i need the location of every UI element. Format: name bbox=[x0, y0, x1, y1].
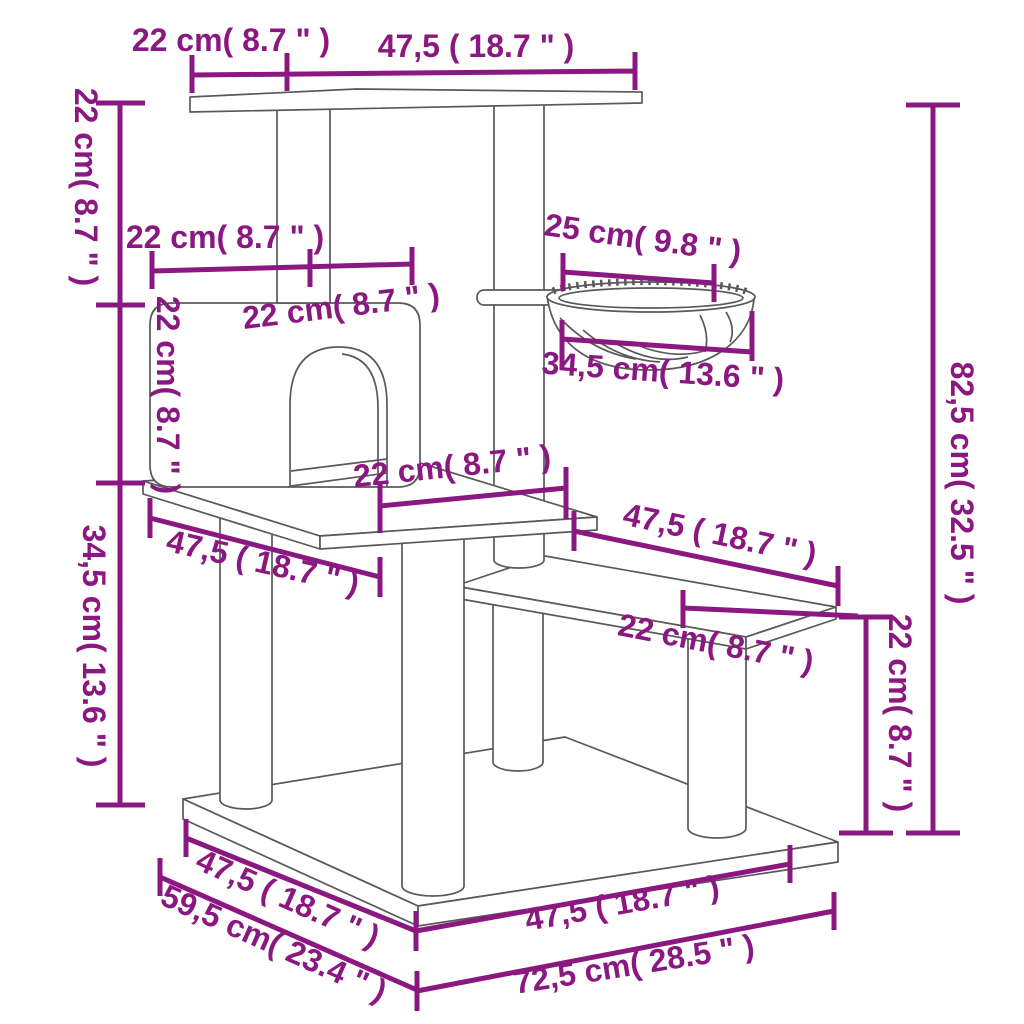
diagram-canvas: 22 cm( 8.7 " ) 47,5 ( 18.7 " ) 22 cm( 8.… bbox=[0, 0, 1024, 1024]
dim-label-house-width: 22 cm( 8.7 " ) bbox=[126, 219, 324, 255]
dim-label-base-width-right: 72,5 cm( 28.5 " ) bbox=[511, 927, 757, 1001]
dim-label-step-height: 22 cm( 8.7 " ) bbox=[882, 614, 918, 812]
dim-label-hammock-opening: 25 cm( 9.8 " ) bbox=[542, 206, 743, 269]
dim-label-total-height: 82,5 cm( 32.5 " ) bbox=[944, 362, 980, 605]
step-left-post bbox=[493, 590, 543, 771]
dim-label-top-platform-length: 47,5 ( 18.7 " ) bbox=[378, 28, 575, 64]
dim-label-upper-section-height: 22 cm( 8.7 " ) bbox=[68, 88, 104, 286]
dim-label-top-offset: 22 cm( 8.7 " ) bbox=[132, 22, 330, 58]
left-post bbox=[277, 100, 330, 303]
center-post bbox=[402, 530, 464, 896]
top-platform bbox=[190, 89, 642, 112]
cat-tree-dimension-diagram: 22 cm( 8.7 " ) 47,5 ( 18.7 " ) 22 cm( 8.… bbox=[0, 0, 1024, 1024]
cat-tree-drawing bbox=[143, 89, 838, 926]
dim-label-lower-section-height: 34,5 cm( 13.6 " ) bbox=[76, 525, 112, 768]
dim-label-house-height: 22 cm( 8.7 " ) bbox=[150, 296, 186, 494]
